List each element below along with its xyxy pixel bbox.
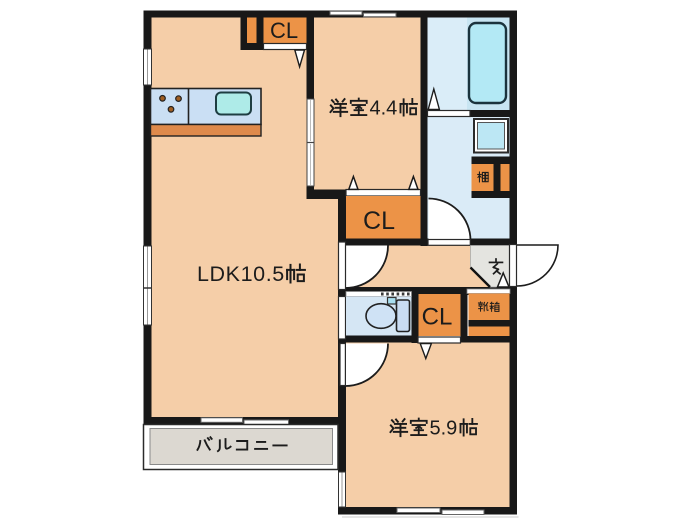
svg-text:LDK10.5: LDK10.5 — [197, 262, 285, 286]
svg-text:CL: CL — [363, 207, 395, 235]
svg-text:5.9: 5.9 — [430, 418, 458, 440]
svg-text:4.4: 4.4 — [370, 98, 398, 120]
svg-text:CL: CL — [270, 18, 298, 43]
svg-text:CL: CL — [422, 304, 453, 331]
